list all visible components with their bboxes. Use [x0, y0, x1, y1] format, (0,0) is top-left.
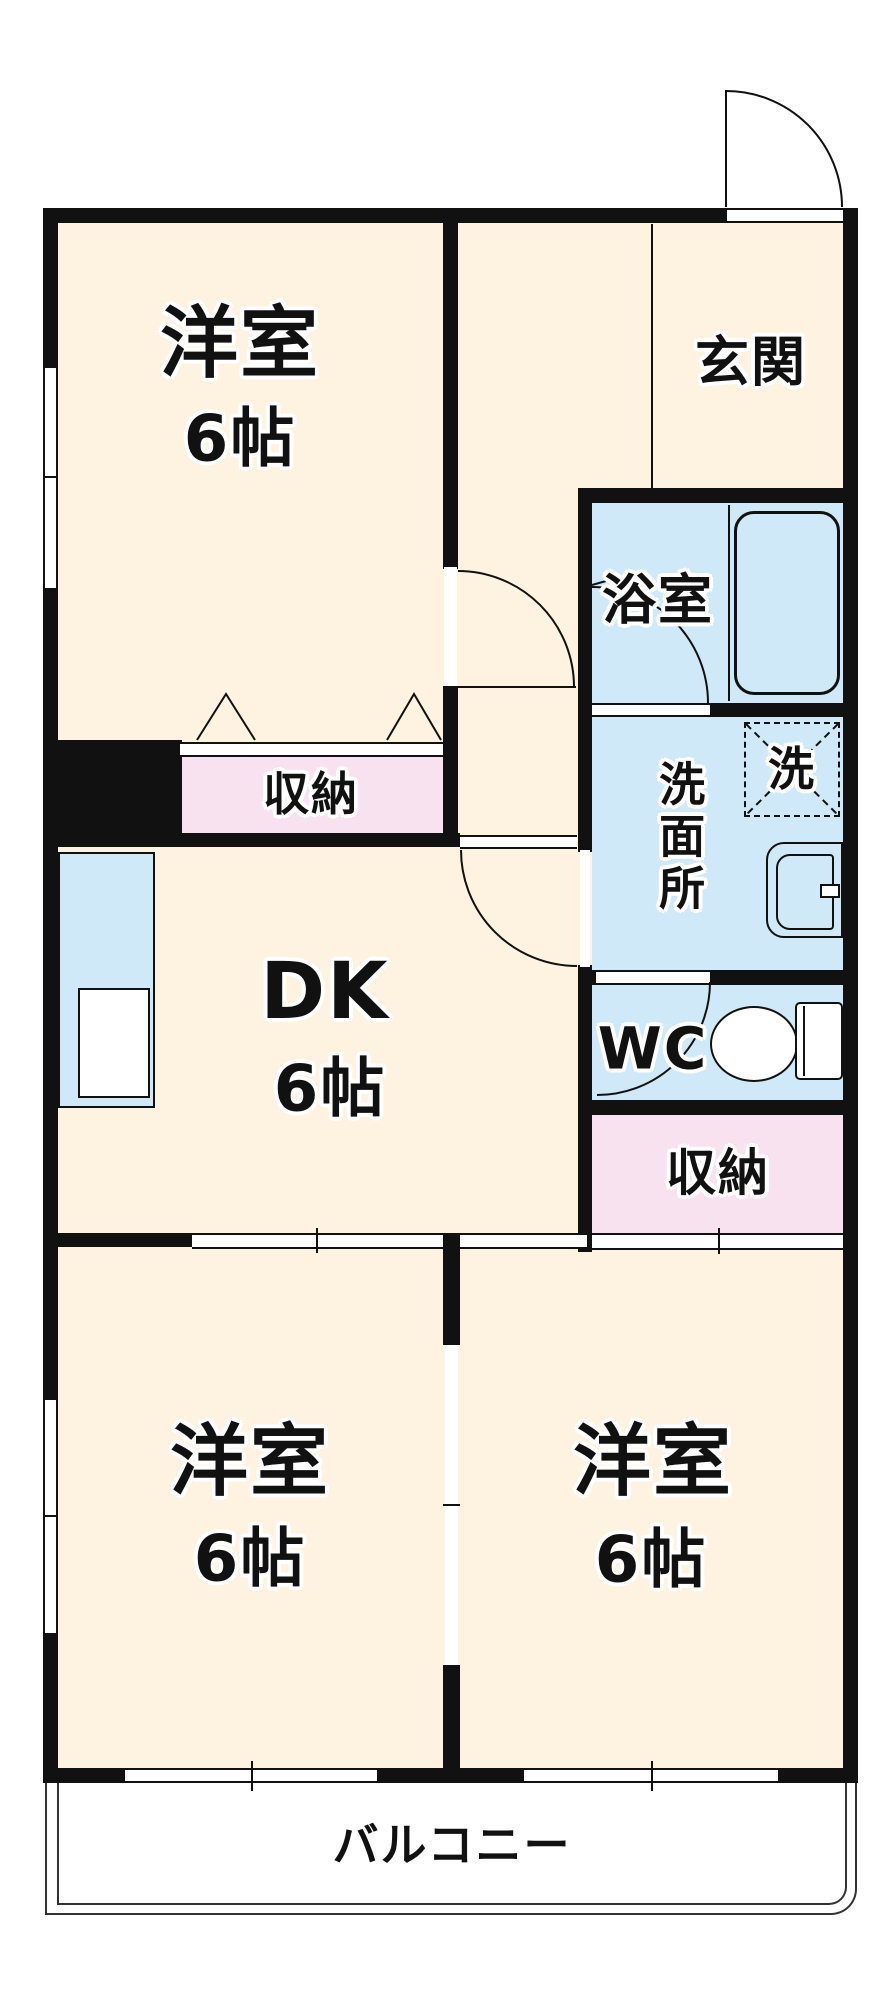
label-dk-size: 6帖: [274, 1056, 387, 1123]
label-bedroom1-size: 6帖: [184, 406, 297, 473]
entrance-door-arc: [726, 91, 842, 207]
label-wc: WC: [598, 1019, 709, 1080]
floor-plan: 洋室 6帖 玄関 浴室 洗面所 洗 WC 収納 収納 DK 6帖 洋室 6帖 洋…: [0, 0, 892, 2000]
label-closet-right: 収納: [666, 1147, 770, 1200]
label-genkan: 玄関: [695, 335, 807, 392]
label-bedroom3-size: 6帖: [194, 1526, 307, 1593]
washroom-door-arc: [461, 850, 577, 966]
label-closet-left: 収納: [263, 770, 359, 818]
closet-fold-triangle-left: [197, 694, 255, 740]
label-bedroom1-name: 洋室: [160, 304, 320, 386]
label-bedroom3-name: 洋室: [170, 1422, 330, 1504]
label-bedroom4-name: 洋室: [573, 1422, 733, 1504]
label-washing-machine: 洗: [768, 745, 816, 793]
bedroom1-door-arc: [458, 571, 574, 687]
closet-fold-triangle-right: [387, 694, 441, 740]
linework-layer: [0, 0, 892, 2000]
label-dk-name: DK: [260, 952, 389, 1034]
label-bathroom: 浴室: [602, 573, 714, 630]
label-balcony: バルコニー: [332, 1821, 571, 1869]
label-bedroom4-size: 6帖: [595, 1527, 708, 1594]
label-washroom: 洗面所: [655, 760, 703, 916]
